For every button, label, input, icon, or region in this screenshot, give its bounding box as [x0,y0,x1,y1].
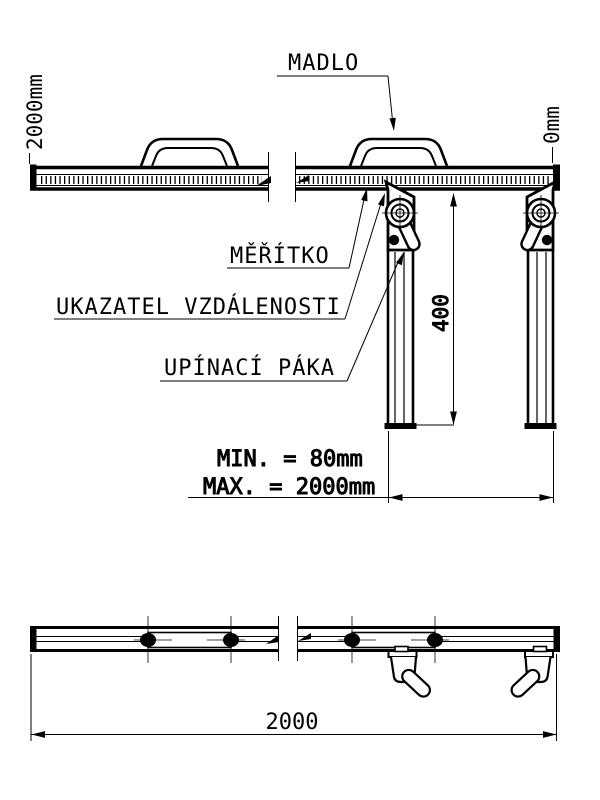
handle-left [141,139,238,166]
handle-inner [361,148,436,166]
ukazatel-label: UKAZATEL VZDÁLENOSTI [56,294,341,320]
handle-mount-left [134,616,245,663]
handle-outer [350,139,447,166]
leg-foot [385,423,417,429]
mount-dot [344,633,360,647]
dim-arrow-left [32,731,46,738]
beam-rail [30,152,560,202]
upinaci-label: UPÍNACÍ PÁKA [164,355,335,381]
madlo-label: MADLO [288,51,359,76]
mount-dot [140,633,156,647]
clamp-nub [395,647,408,652]
scale-right-label: 0mm [540,106,564,144]
leg [385,250,417,429]
bar-left-cap [30,626,37,652]
scale-end-labels: 2000mm 0mm [23,74,564,164]
madlo-leader [388,76,393,125]
bar-right-cap [554,626,561,652]
meritko-leader [349,195,365,268]
mount-dot [223,633,239,647]
meritko-label: MĚŘÍTKO [230,243,330,269]
bottom-bar [30,616,560,661]
break-wedge-right [296,175,309,183]
bottom-clamp-left [389,647,433,700]
technical-drawing-page: 400 MIN. = 80mm MAX. = 2000mm 2000mm 0mm… [0,0,600,800]
clamp-lever [400,667,433,699]
side-view [30,139,560,429]
dim-arrow-down [450,412,457,426]
dim-arrow-left [389,494,403,501]
bottom-view: 2000 [30,616,560,741]
dim-arrow-right [540,494,554,501]
beam-left-cap [30,165,37,191]
dimension-2000: 2000 [31,654,557,741]
madlo-arrow [389,118,397,132]
callout-ukazatel: UKAZATEL VZDÁLENOSTI [54,192,388,320]
dim-arrow-right [543,731,557,738]
callout-madlo: MADLO [277,51,397,131]
upinaci-arrow [396,251,407,265]
scale-left-label: 2000mm [23,74,47,150]
bottom-clamp-right [509,647,553,700]
handle-right [350,139,447,166]
clamp-carriage-right [520,182,559,429]
dimension-min-max: MIN. = 80mm MAX. = 2000mm [188,431,554,503]
clamping-rail-drawing: 400 MIN. = 80mm MAX. = 2000mm 2000mm 0mm… [0,0,600,800]
dim-400-text: 400 [429,294,453,332]
handle-outer [141,139,238,166]
dim-2000-text: 2000 [266,710,319,735]
dim-arrow-up [450,193,457,207]
upinaci-leader [347,260,399,381]
callouts: MADLO MĚŘÍTKO UKAZATEL VZDÁLENOSTI UPÍNA… [54,51,407,381]
callout-meritko: MĚŘÍTKO [227,187,370,269]
clamp-carriage-left [382,182,421,429]
max-text: MAX. = 2000mm [203,475,375,500]
min-text: MIN. = 80mm [217,447,363,472]
lever-screw-dot [389,235,399,245]
mount-dot [427,633,443,647]
handle-inner [152,148,227,166]
ukazatel-arrow [378,192,388,206]
